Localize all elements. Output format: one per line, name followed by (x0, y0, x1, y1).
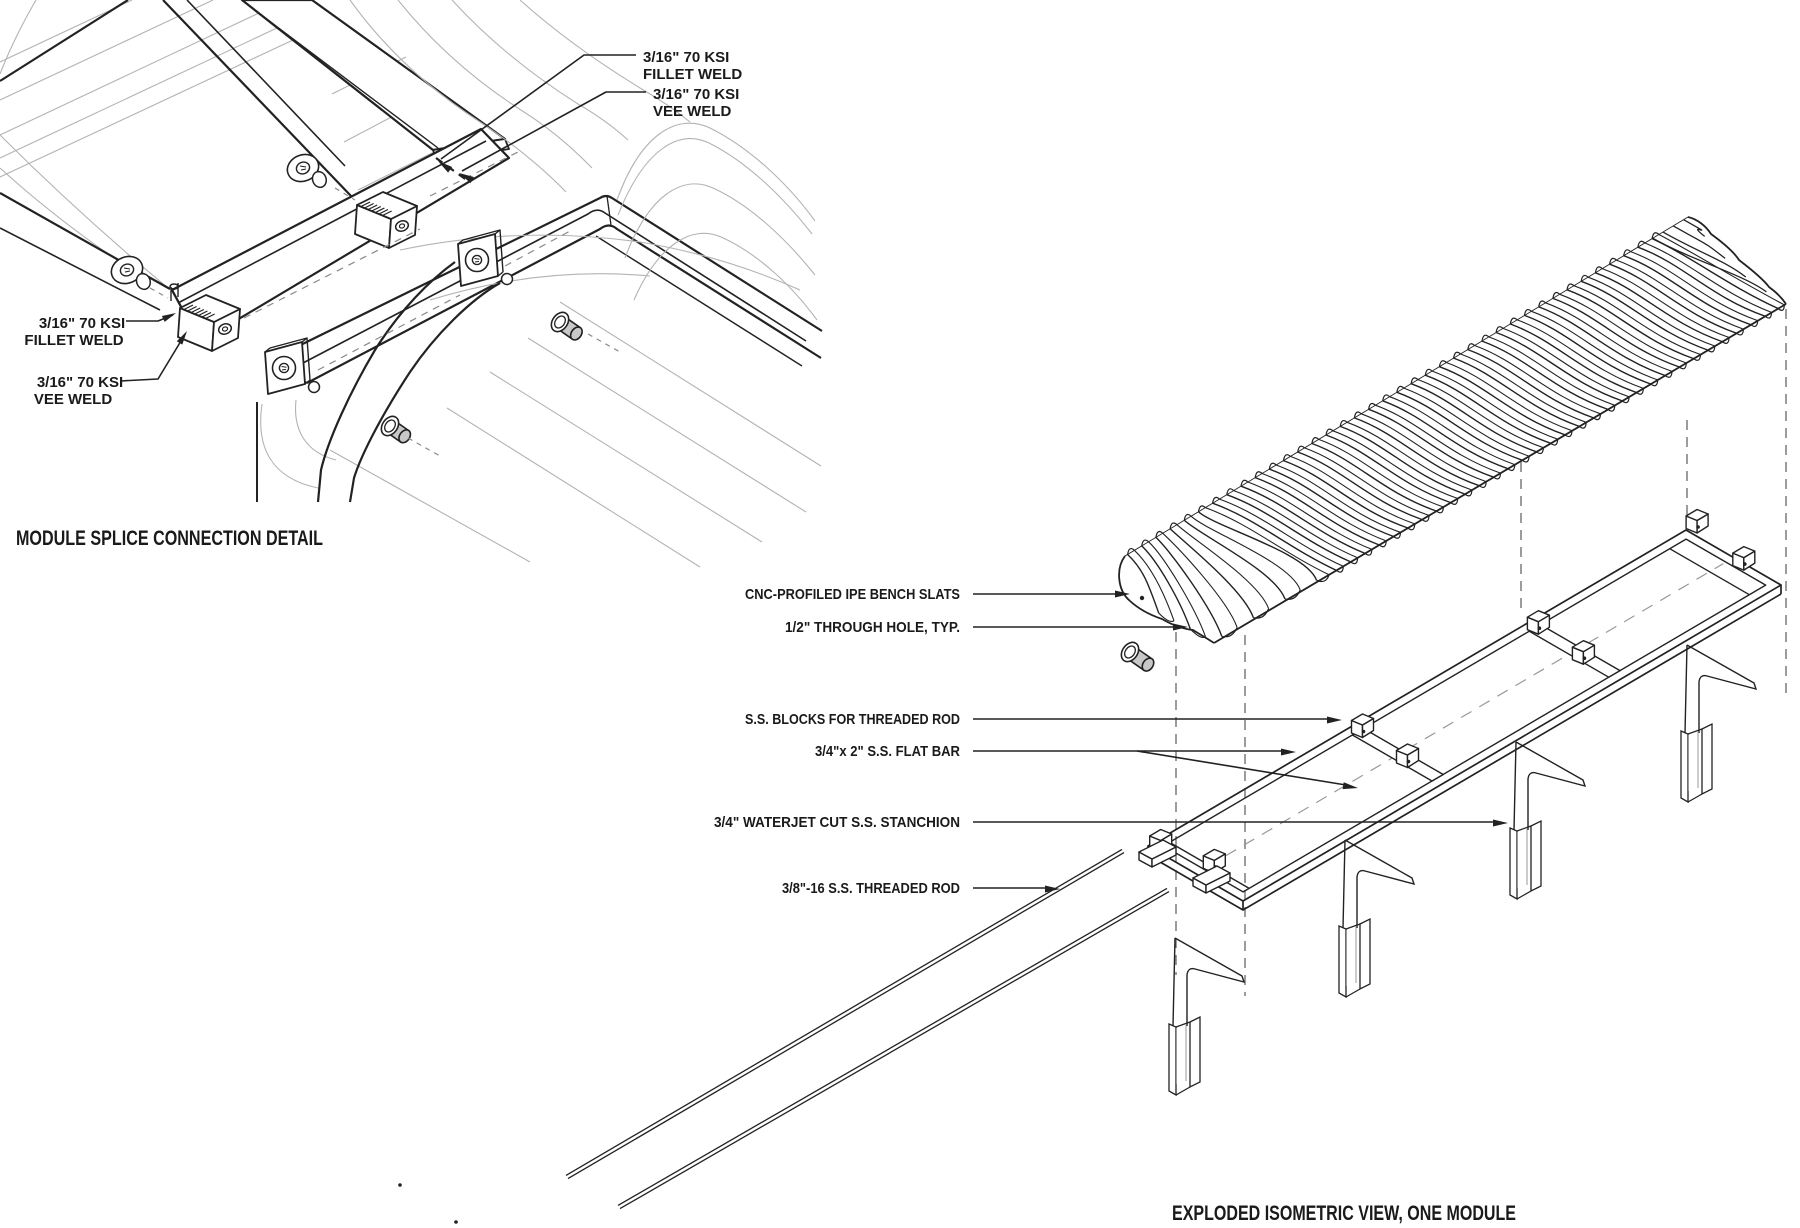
svg-text:3/16" 70 KSI: 3/16" 70 KSI (39, 315, 125, 332)
svg-text:3/8"-16 S.S. THREADED ROD: 3/8"-16 S.S. THREADED ROD (782, 880, 960, 897)
svg-text:MODULE SPLICE CONNECTION DETAI: MODULE SPLICE CONNECTION DETAIL (16, 527, 323, 550)
svg-text:EXPLODED ISOMETRIC VIEW, ONE M: EXPLODED ISOMETRIC VIEW, ONE MODULE (1172, 1202, 1516, 1225)
svg-text:3/16" 70 KSI: 3/16" 70 KSI (37, 374, 123, 391)
svg-text:1/2" THROUGH HOLE, TYP.: 1/2" THROUGH HOLE, TYP. (785, 619, 960, 636)
svg-text:3/4" WATERJET CUT S.S. STANCHI: 3/4" WATERJET CUT S.S. STANCHION (714, 814, 960, 831)
svg-text:FILLET WELD: FILLET WELD (24, 332, 123, 349)
svg-text:VEE WELD: VEE WELD (34, 391, 113, 408)
svg-text:FILLET WELD: FILLET WELD (643, 66, 742, 83)
svg-text:3/4"x 2" S.S. FLAT BAR: 3/4"x 2" S.S. FLAT BAR (815, 743, 960, 760)
svg-text:CNC-PROFILED IPE BENCH SLATS: CNC-PROFILED IPE BENCH SLATS (745, 586, 960, 603)
svg-text:3/16" 70 KSI: 3/16" 70 KSI (643, 49, 729, 66)
svg-text:VEE WELD: VEE WELD (653, 103, 732, 120)
svg-text:S.S. BLOCKS FOR THREADED ROD: S.S. BLOCKS FOR THREADED ROD (745, 711, 960, 728)
svg-text:3/16" 70 KSI: 3/16" 70 KSI (653, 86, 739, 103)
